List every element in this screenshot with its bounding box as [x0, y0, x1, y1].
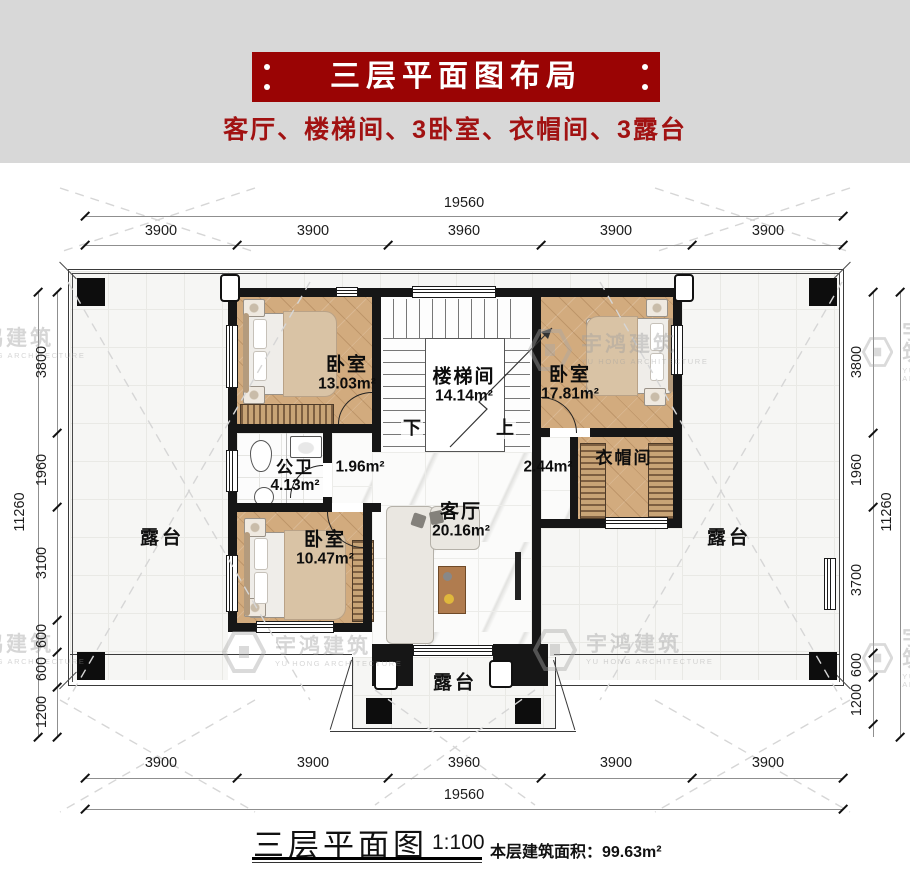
- room-name: 楼梯间: [432, 367, 495, 388]
- window: [336, 287, 358, 297]
- wall: [532, 452, 541, 657]
- window: [605, 517, 668, 529]
- room-name: 公卫: [270, 458, 319, 477]
- dim-label: 1200: [849, 684, 865, 716]
- page-subtitle: 客厅、楼梯间、3卧室、衣帽间、3露台: [0, 110, 910, 146]
- door-frame: [374, 660, 398, 690]
- window: [671, 325, 683, 375]
- footer-scale: 1:100: [432, 831, 485, 855]
- banner-dot: [264, 64, 270, 70]
- dim-label: 11260: [12, 492, 28, 531]
- title-banner: 三层平面图布局: [252, 52, 660, 102]
- terrace-right-label: 露台: [707, 523, 751, 550]
- wall: [541, 428, 550, 437]
- wall: [228, 503, 325, 512]
- room-area: 10.47m²: [296, 551, 354, 568]
- stair-down-label: 下: [401, 419, 423, 439]
- wall: [323, 433, 332, 463]
- dim-label: 3960: [448, 223, 480, 239]
- floorplan-page: 三层平面图布局 客厅、楼梯间、3卧室、衣帽间、3露台: [0, 0, 910, 873]
- column: [77, 652, 105, 680]
- dim-label: 19560: [444, 787, 484, 803]
- wall: [590, 428, 682, 437]
- dim-label: 600: [34, 624, 50, 648]
- window: [226, 450, 238, 492]
- dim-label: 3900: [600, 755, 632, 771]
- parapet-window: [824, 558, 836, 610]
- wall: [570, 437, 578, 519]
- wall: [532, 288, 541, 452]
- room-area: 2.44m²: [523, 458, 572, 475]
- door-frame: [674, 274, 694, 302]
- room-name: 客厅: [432, 502, 490, 523]
- banner-dot: [642, 64, 648, 70]
- sofa: [386, 506, 434, 644]
- room-area: 1.96m²: [335, 458, 384, 475]
- pillow: [253, 351, 267, 381]
- dim-label: 3960: [448, 755, 480, 771]
- dim-label: 3100: [34, 547, 50, 579]
- dim-line: [873, 292, 874, 737]
- parapet-line: [554, 654, 840, 655]
- room-label-bathroom: 公卫 4.13m²: [270, 458, 319, 494]
- parapet-inner-line: [72, 273, 840, 682]
- watermark: 宇鸿建筑YU HONG ARCHITECTURE: [862, 322, 910, 382]
- dim-line: [85, 778, 843, 779]
- dim-label: 3900: [600, 223, 632, 239]
- watermark-text: 宇鸿建筑YU HONG ARCHITECTURE: [902, 322, 910, 382]
- room-label-bedroom-tr: 卧室 17.81m²: [541, 365, 599, 404]
- watermark-text: 宇鸿建筑YU HONG ARCHITECTURE: [902, 628, 910, 688]
- table-item: [444, 594, 454, 604]
- pillow: [650, 323, 664, 351]
- dim-label: 3800: [34, 346, 50, 378]
- bench: [644, 388, 666, 406]
- dim-label: 1960: [849, 454, 865, 486]
- sliding-door: [413, 645, 493, 656]
- wall: [673, 288, 682, 528]
- pillow: [253, 319, 267, 349]
- dim-line: [85, 245, 843, 246]
- column: [809, 652, 837, 680]
- table-item: [443, 572, 452, 581]
- bed-headboard: [243, 313, 249, 393]
- wall: [228, 424, 381, 433]
- sink: [290, 436, 322, 458]
- window: [226, 555, 238, 612]
- dim-line: [900, 292, 901, 737]
- room-label-bedroom-tl: 卧室 13.03m²: [318, 355, 376, 394]
- room-area: 17.81m²: [541, 386, 599, 403]
- dim-label: 3900: [297, 755, 329, 771]
- room-name: 卧室: [296, 530, 354, 551]
- nightstand: [646, 299, 668, 317]
- dim-label: 11260: [879, 492, 895, 531]
- coffee-table: [438, 566, 466, 614]
- wall: [363, 503, 372, 632]
- bed-headboard: [244, 532, 250, 616]
- watermark-subtext: YU HONG ARCHITECTURE: [902, 673, 910, 688]
- dim-line: [85, 216, 843, 217]
- room-label-hall-left: 1.96m²: [335, 458, 384, 475]
- footer-area-text: 本层建筑面积：99.63m²: [490, 838, 662, 862]
- door-frame: [220, 274, 240, 302]
- column: [809, 278, 837, 306]
- column: [515, 698, 541, 724]
- room-label-cloakroom: 衣帽间: [596, 448, 653, 467]
- stair-up-label: 上: [494, 419, 516, 439]
- room-name: 卧室: [541, 365, 599, 386]
- dim-line: [85, 809, 843, 810]
- window: [256, 621, 334, 633]
- room-name: 卧室: [318, 355, 376, 376]
- dim-label: 3800: [849, 346, 865, 378]
- room-area: 13.03m²: [318, 376, 376, 393]
- pillow: [254, 572, 268, 604]
- room-label-stairwell: 楼梯间 14.14m²: [432, 367, 495, 406]
- room-area: 14.14m²: [432, 388, 495, 405]
- window: [226, 325, 238, 388]
- dim-label: 3900: [297, 223, 329, 239]
- parapet-line: [70, 654, 352, 655]
- dim-label: 1960: [34, 454, 50, 486]
- room-name: 衣帽间: [596, 448, 653, 467]
- dim-label: 19560: [444, 195, 484, 211]
- dim-label: 1200: [34, 696, 50, 728]
- page-title: 三层平面图布局: [252, 52, 660, 102]
- room-label-bedroom-bl: 卧室 10.47m²: [296, 530, 354, 569]
- hexagon-logo-icon: [862, 330, 893, 374]
- dim-label: 3700: [849, 564, 865, 596]
- terrace-outer-line: [330, 731, 576, 732]
- wardrobe: [240, 404, 334, 425]
- room-label-living: 客厅 20.16m²: [432, 502, 490, 541]
- banner-dot: [264, 84, 270, 90]
- tv: [515, 552, 521, 600]
- dim-label: 600: [849, 653, 865, 677]
- terrace-bottom-label: 露台: [433, 668, 477, 695]
- watermark-name: 宇鸿建筑: [902, 322, 910, 364]
- room-label-hall-right: 2.44m²: [523, 458, 572, 475]
- watermark-name: 宇鸿建筑: [902, 628, 910, 670]
- dim-label: 3900: [752, 755, 784, 771]
- banner-dot: [642, 84, 648, 90]
- footer-underline-thick: [252, 857, 482, 860]
- watermark-subtext: YU HONG ARCHITECTURE: [902, 367, 910, 382]
- room-area: 20.16m²: [432, 523, 490, 540]
- terrace-left-label: 露台: [140, 523, 184, 550]
- dim-label: 3900: [752, 223, 784, 239]
- pillow: [254, 538, 268, 570]
- footer-underline-thin: [252, 862, 482, 863]
- door-frame: [489, 660, 513, 688]
- window: [412, 286, 496, 298]
- terrace-parapet: [68, 269, 844, 686]
- dim-label: 3900: [145, 223, 177, 239]
- dim-label: 600: [34, 657, 50, 681]
- column: [77, 278, 105, 306]
- room-area: 4.13m²: [270, 477, 319, 494]
- pillow: [650, 353, 664, 381]
- dim-label: 3900: [145, 755, 177, 771]
- column: [366, 698, 392, 724]
- dim-line: [57, 292, 58, 737]
